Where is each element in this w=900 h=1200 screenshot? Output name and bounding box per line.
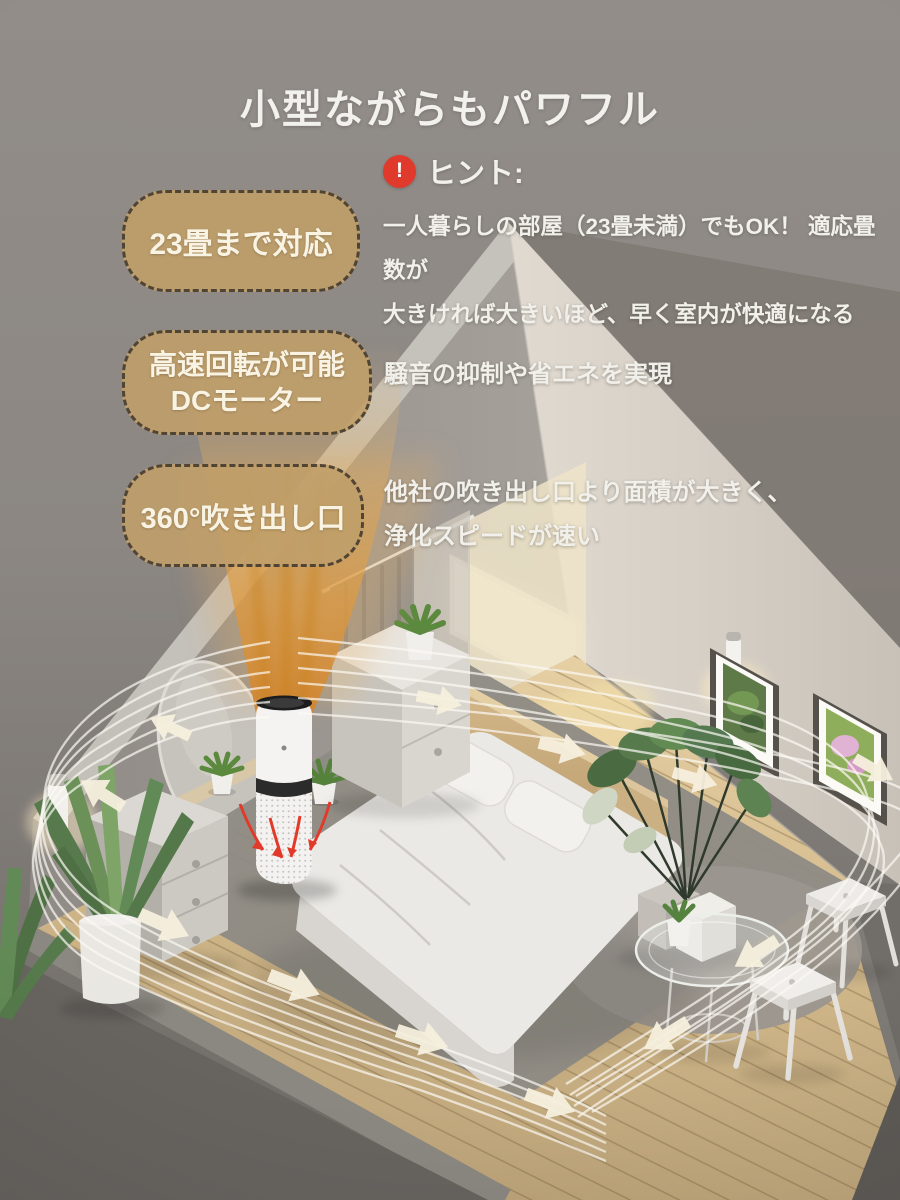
hint-text-line2: 大きければ大きいほど、早く室内が快適になる (383, 293, 888, 337)
desc-line: 他社の吹き出し口より面積が大きく、 (384, 471, 792, 515)
badge-label: 23畳まで対応 (149, 219, 332, 263)
feature-badge-coverage: 23畳まで対応 (122, 190, 360, 292)
desc-line: 浄化スピードが速い (384, 515, 792, 559)
hint-header: ! ヒント: (383, 150, 888, 192)
badge-label-line2: DCモーター (171, 383, 323, 419)
product-infographic: 小型ながらもパワフル ! ヒント: 一人暮らしの部屋（23畳未満）でもOK！ 適… (0, 0, 900, 1200)
hint-label: ヒント: (427, 150, 524, 192)
badge-label: 360°吹き出し口 (141, 495, 346, 537)
hint-block: ! ヒント: 一人暮らしの部屋（23畳未満）でもOK！ 適応畳数が 大きければ大… (383, 150, 888, 337)
desc-line: 騒音の抑制や省エネを実現 (384, 353, 672, 397)
exclamation-icon: ! (383, 155, 416, 188)
feature-desc-outlet: 他社の吹き出し口より面積が大きく、 浄化スピードが速い (384, 471, 792, 559)
hint-text-line1: 一人暮らしの部屋（23畳未満）でもOK！ 適応畳数が (383, 205, 888, 293)
feature-badge-dc-motor: 高速回転が可能 DCモーター (122, 330, 372, 435)
badge-label: 高速回転が可能 (149, 347, 345, 383)
feature-desc-dc-motor: 騒音の抑制や省エネを実現 (384, 353, 672, 397)
page-title: 小型ながらもパワフル (0, 77, 900, 135)
feature-badge-outlet: 360°吹き出し口 (122, 464, 364, 567)
